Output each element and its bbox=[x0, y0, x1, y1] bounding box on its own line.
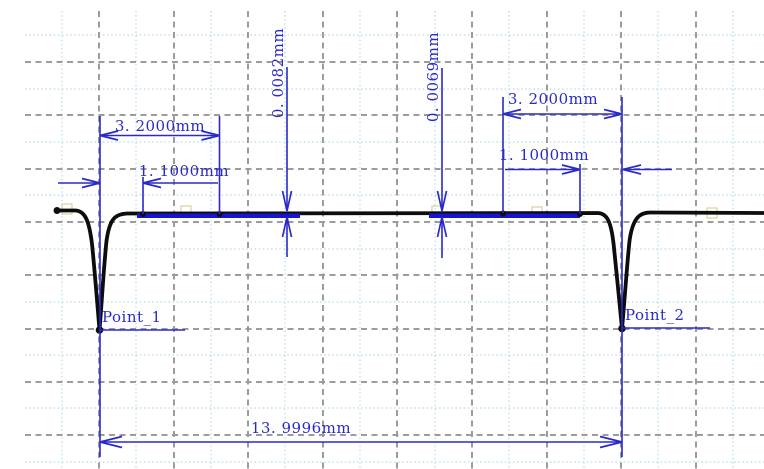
dim-label-left-3-2: 3. 2000mm bbox=[115, 117, 205, 135]
dim-label-left-1-1: 1. 1000mm bbox=[139, 162, 229, 180]
dim-label-right-3-2: 3. 2000mm bbox=[508, 90, 598, 108]
point-1-label: Point_1 bbox=[102, 308, 162, 326]
dim-label-step-0-0069: 0. 0069mm bbox=[424, 32, 442, 122]
dim-label-total-width: 13. 9996mm bbox=[251, 419, 351, 437]
profile-chart-canvas[interactable]: 3. 2000mm 1. 1000mm 0. 0082mm 0. 0069mm … bbox=[0, 0, 764, 469]
profile-plot-area: 3. 2000mm 1. 1000mm 0. 0082mm 0. 0069mm … bbox=[0, 0, 764, 469]
measure-point-dot bbox=[54, 207, 61, 214]
grid-layer bbox=[25, 11, 764, 469]
point-2-label: Point_2 bbox=[625, 306, 685, 324]
dim-label-right-1-1: 1. 1000mm bbox=[499, 146, 589, 164]
dim-label-step-0-0082: 0. 0082mm bbox=[269, 28, 287, 118]
